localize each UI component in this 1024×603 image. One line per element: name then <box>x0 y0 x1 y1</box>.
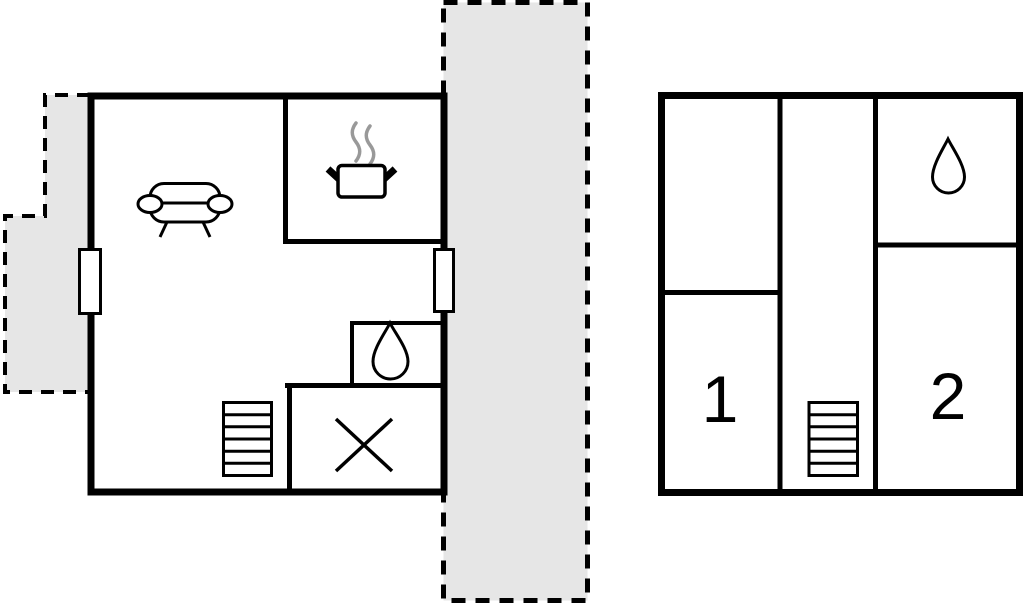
room-2-label: 2 <box>930 359 967 433</box>
floor-plan-canvas: 1 2 <box>0 0 1024 603</box>
door-icon <box>80 250 101 314</box>
terrace-middle <box>444 3 588 601</box>
door-icon <box>435 250 454 312</box>
floor-plan-right: 1 2 <box>662 96 1020 493</box>
terrace-middle-area <box>444 3 588 601</box>
floorplan-screenshot: 1 2 <box>0 0 1024 603</box>
floor-plan-left <box>80 96 454 493</box>
terrace-left <box>5 95 90 392</box>
room-1-label: 1 <box>702 362 739 436</box>
stairs-icon <box>224 403 272 476</box>
terrace-left-area <box>5 95 90 392</box>
stairs-icon <box>809 403 858 476</box>
